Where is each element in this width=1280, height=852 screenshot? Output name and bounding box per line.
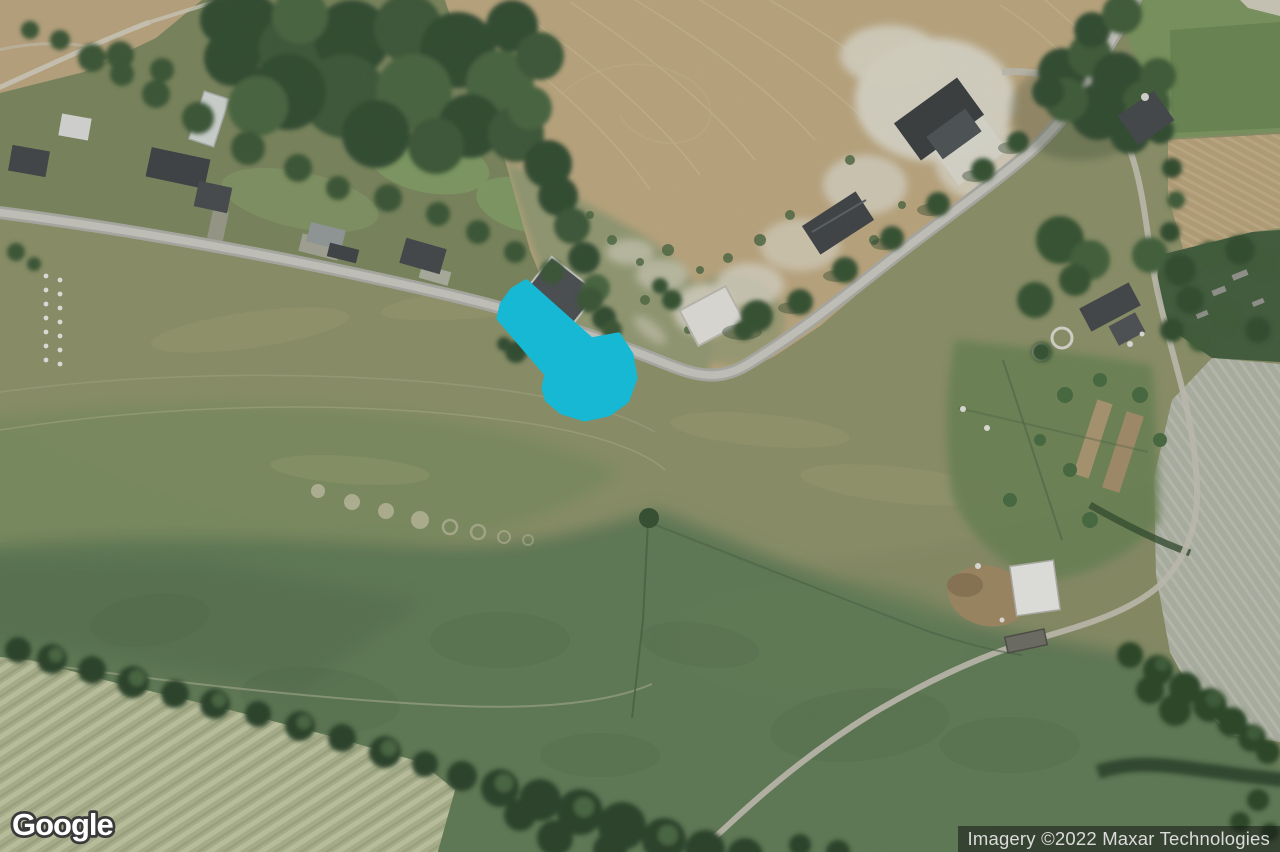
map-canvas[interactable] <box>0 0 1280 852</box>
google-watermark[interactable]: Google <box>8 802 158 846</box>
attribution-bar: Imagery ©2022 Maxar Technologies <box>958 826 1280 852</box>
map-viewport[interactable]: Google Imagery ©2022 Maxar Technologies <box>0 0 1280 852</box>
attribution-text: Imagery ©2022 Maxar Technologies <box>968 828 1271 850</box>
grain-texture <box>0 0 1280 852</box>
google-watermark-text: Google <box>12 807 114 842</box>
